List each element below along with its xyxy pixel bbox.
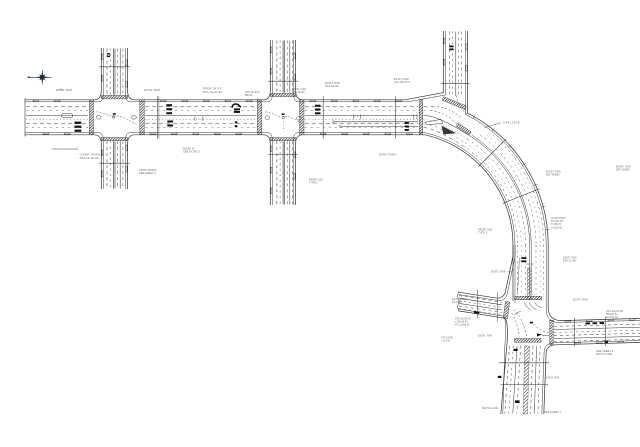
svg-text:N 0: N 0 xyxy=(59,89,64,92)
svg-text:EXIST. R/W: EXIST. R/W xyxy=(491,270,506,274)
svg-text:EXIST. R/W: EXIST. R/W xyxy=(546,377,560,380)
svg-text:EXIST. R/WSTA 18+00: EXIST. R/WSTA 18+00 xyxy=(325,81,340,88)
svg-text:PROP. 24' F-FSTA 15+21.33: PROP. 24' F-FSTA 15+21.33 xyxy=(203,87,222,94)
svg-text:MATCH LINE: MATCH LINE xyxy=(482,406,498,410)
svg-text:FRONTAGE ROAD: FRONTAGE ROAD xyxy=(52,147,79,151)
svg-text:EXIST. R/W(60' WIDE): EXIST. R/W(60' WIDE) xyxy=(616,165,631,172)
svg-text:EXIST. R/WSTA 20+15.5: EXIST. R/WSTA 20+15.5 xyxy=(394,77,410,84)
svg-text:SEE SHEET 7: SEE SHEET 7 xyxy=(544,410,562,414)
svg-text:N 44°12'30"E: N 44°12'30"E xyxy=(503,121,520,125)
svg-text:EXIST. R/W(60' WIDE): EXIST. R/W(60' WIDE) xyxy=(546,170,561,177)
svg-text:EXIST. PVMT.: EXIST. PVMT. xyxy=(379,153,397,157)
svg-text:EXIST. R/W: EXIST. R/W xyxy=(144,88,160,92)
svg-text:SEE SHEET 6MATCH LINE: SEE SHEET 6MATCH LINE xyxy=(596,349,614,356)
svg-text:EXIST. R/W: EXIST. R/W xyxy=(478,334,493,338)
svg-text:24+00: 24+00 xyxy=(526,262,534,266)
svg-text:EXIST. R/WSTA 22+50: EXIST. R/WSTA 22+50 xyxy=(563,256,577,263)
svg-text:PROP. SIGNALSEE SHEET 9: PROP. SIGNALSEE SHEET 9 xyxy=(139,168,158,175)
svg-text:EXIST. R/W: EXIST. R/W xyxy=(573,298,588,302)
svg-text:PROP. C&GSTA 18+40: PROP. C&GSTA 18+40 xyxy=(292,87,306,94)
